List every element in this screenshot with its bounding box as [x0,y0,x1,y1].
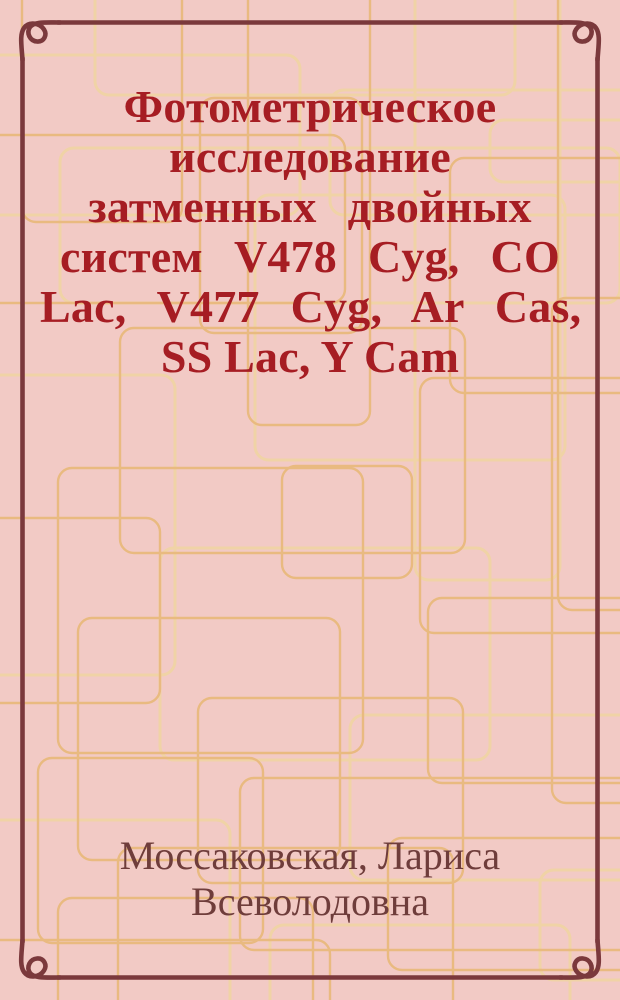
title-line: Фотометрическое [40,82,580,132]
corner-curl-top-right-icon [560,22,599,60]
title-line: исследование [40,132,580,182]
book-author: Моссаковская, Лариса Всеволодовна [40,833,580,925]
book-title: Фотометрическое исследование затменных д… [40,82,580,382]
author-line: Всеволодовна [40,879,580,925]
title-line: Lac, V477 Cyg, Ar Cas, [40,282,580,332]
author-line: Моссаковская, Лариса [40,833,580,879]
title-line: систем V478 Cyg, CO [40,232,580,282]
title-line: затменных двойных [40,182,580,232]
corner-curl-bottom-right-icon [560,940,599,978]
book-cover: Фотометрическое исследование затменных д… [0,0,620,1000]
title-line: SS Lac, Y Cam [40,332,580,382]
corner-curl-bottom-left-icon [21,940,60,978]
